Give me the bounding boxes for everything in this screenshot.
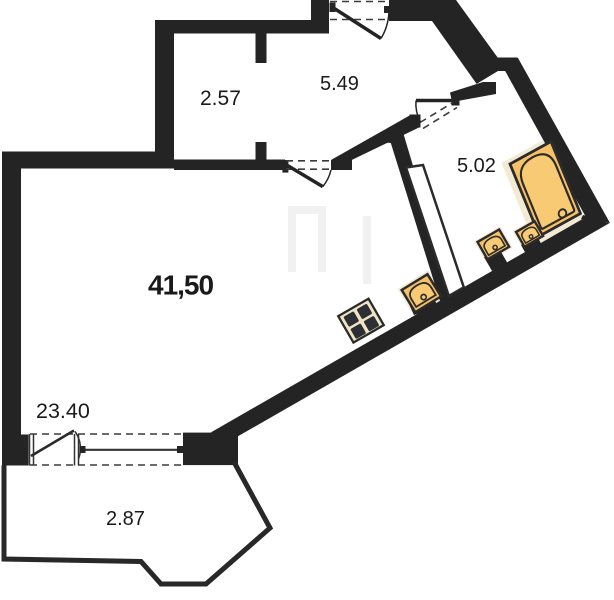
- svg-text:5.49: 5.49: [320, 73, 359, 95]
- svg-text:41,50: 41,50: [148, 270, 213, 301]
- svg-text:23.40: 23.40: [36, 399, 90, 423]
- svg-text:2.57: 2.57: [200, 87, 241, 110]
- svg-text:5.02: 5.02: [457, 155, 496, 177]
- svg-text:2.87: 2.87: [106, 508, 145, 530]
